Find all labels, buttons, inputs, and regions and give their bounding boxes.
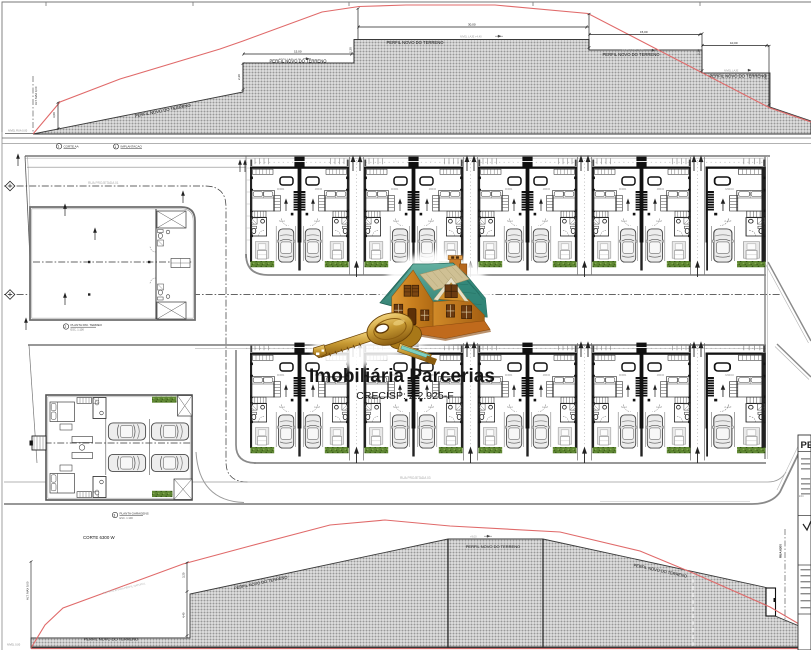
svg-text:3,00: 3,00 xyxy=(52,112,56,118)
svg-text:ALT. MAX 9,00: ALT. MAX 9,00 xyxy=(34,86,38,105)
svg-text:PERFIL NOVO DO TERRENO: PERFIL NOVO DO TERRENO xyxy=(386,40,444,45)
svg-text:ESC. 1:100: ESC. 1:100 xyxy=(120,516,134,520)
svg-text:PERFIL NOVO DO TERRENO: PERFIL NOVO DO TERRENO xyxy=(602,52,660,57)
svg-text:+9,00: +9,00 xyxy=(470,535,477,539)
svg-text:RUA 6300: RUA 6300 xyxy=(779,544,783,558)
svg-text:NIVEL RUA 0,00: NIVEL RUA 0,00 xyxy=(8,129,28,133)
svg-text:2,20: 2,20 xyxy=(697,49,701,55)
svg-text:NIVEL LAJE: NIVEL LAJE xyxy=(724,69,739,73)
svg-text:PE: PE xyxy=(801,440,811,451)
svg-text:4,40: 4,40 xyxy=(182,612,186,618)
svg-text:15,00: 15,00 xyxy=(640,30,648,34)
svg-text:CORTE AA: CORTE AA xyxy=(64,145,79,149)
svg-text:PERFIL NOVO DO TERRENO: PERFIL NOVO DO TERRENO xyxy=(709,74,767,79)
svg-text:RUA PROJETADA 01: RUA PROJETADA 01 xyxy=(88,181,119,185)
svg-text:PERFIL NOVO DO TERRENO: PERFIL NOVO DO TERRENO xyxy=(84,637,138,642)
svg-text:1: 1 xyxy=(57,145,59,149)
svg-text:IMPLANTACAO: IMPLANTACAO xyxy=(121,145,143,149)
svg-text:CORTE 6300 W: CORTE 6300 W xyxy=(83,535,115,540)
svg-text:10,00: 10,00 xyxy=(730,41,738,45)
svg-text:NIVEL LAJE +2,20: NIVEL LAJE +2,20 xyxy=(279,57,301,61)
svg-text:NIVEL LAJE +2,20: NIVEL LAJE +2,20 xyxy=(622,49,644,53)
svg-text:ESC: ESC xyxy=(799,495,804,498)
svg-text:2: 2 xyxy=(64,325,66,329)
svg-text:15,00: 15,00 xyxy=(294,50,302,54)
svg-text:1: 1 xyxy=(114,145,116,149)
svg-text:ALT. MAX 9,00: ALT. MAX 9,00 xyxy=(26,581,30,600)
svg-text:ESC. 1:100: ESC. 1:100 xyxy=(71,328,85,332)
svg-text:CRECISP: 2.2.925-F: CRECISP: 2.2.925-F xyxy=(356,390,453,402)
svg-text:2,20: 2,20 xyxy=(349,47,353,53)
svg-text:30,00: 30,00 xyxy=(468,23,476,27)
svg-text:PLANTA GARAGENS: PLANTA GARAGENS xyxy=(120,512,149,516)
svg-text:RUA PROJETADA 03: RUA PROJETADA 03 xyxy=(400,476,431,480)
svg-text:PERFIL NOVO DO TERRENO: PERFIL NOVO DO TERRENO xyxy=(466,544,520,549)
svg-text:3: 3 xyxy=(113,513,115,517)
svg-text:Imobiliária Parcerias: Imobiliária Parcerias xyxy=(309,366,495,387)
svg-text:NIVEL LAJE +4,40: NIVEL LAJE +4,40 xyxy=(460,35,482,39)
svg-text:PLANTA PAV. TERREO: PLANTA PAV. TERREO xyxy=(71,323,103,327)
svg-text:NIVEL 0,00: NIVEL 0,00 xyxy=(7,643,21,647)
svg-text:2,20: 2,20 xyxy=(237,74,241,80)
svg-text:3,20: 3,20 xyxy=(182,572,186,578)
